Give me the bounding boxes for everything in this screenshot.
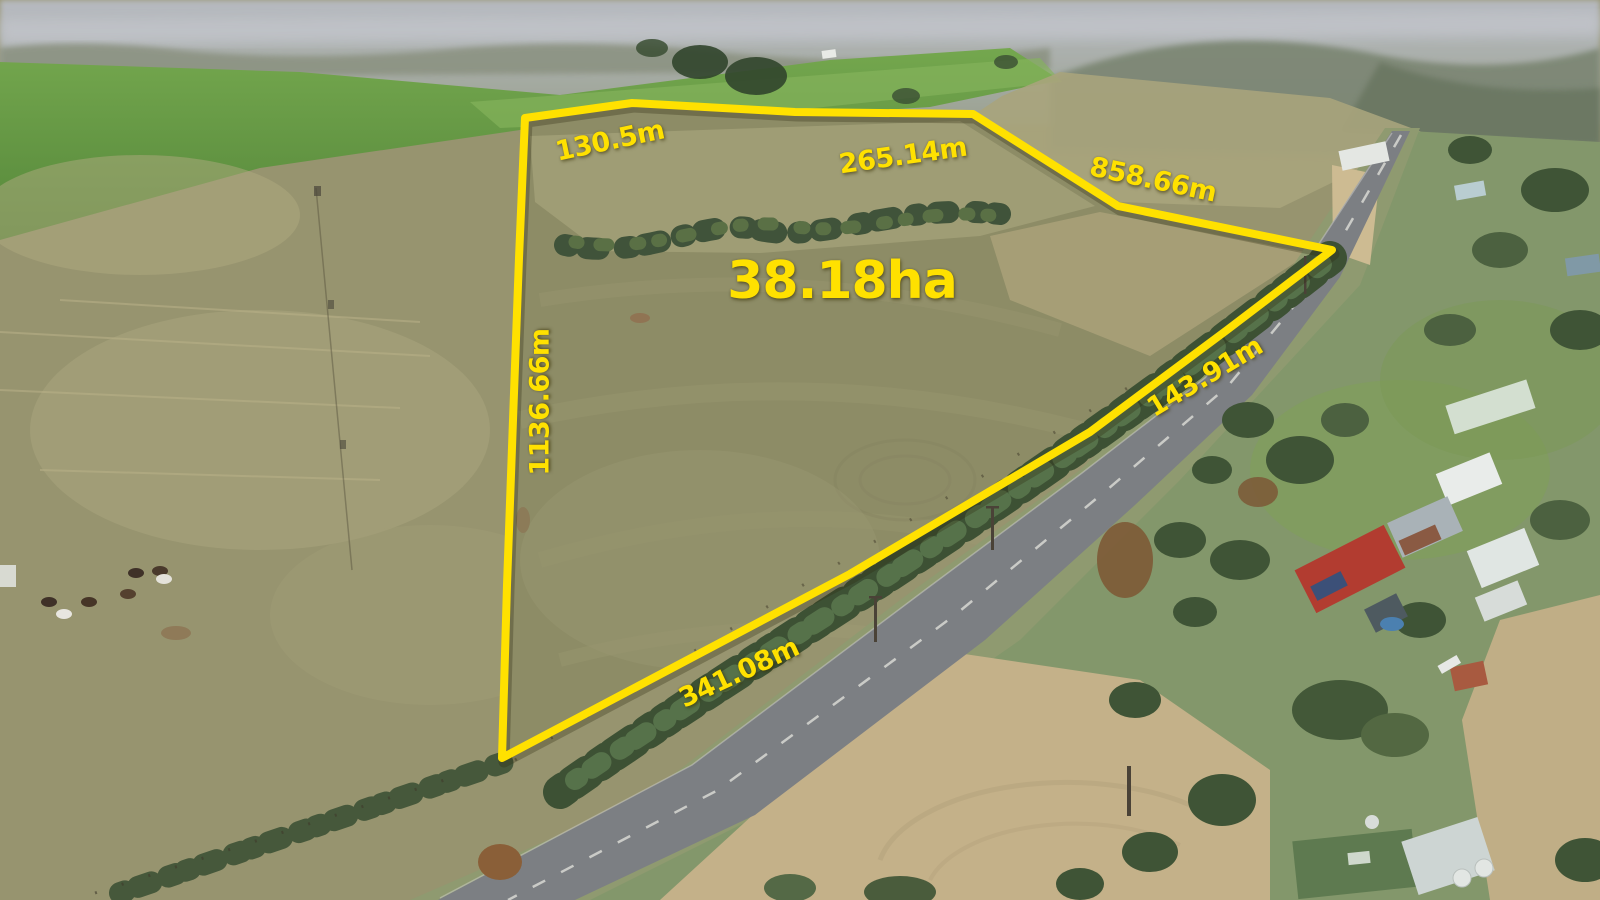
- tree: [1472, 232, 1528, 268]
- cow: [120, 589, 136, 599]
- red-dirt-spot: [516, 507, 530, 533]
- measurement-label-west: 1136.66m: [525, 328, 556, 475]
- crossarm: [986, 506, 999, 509]
- pylon: [314, 186, 321, 196]
- pylon: [340, 440, 346, 449]
- tree: [1173, 597, 1217, 627]
- crossarm: [869, 596, 882, 599]
- tree: [1188, 774, 1256, 826]
- white-cow: [56, 609, 72, 619]
- tree: [1222, 402, 1274, 438]
- tree: [1530, 500, 1590, 540]
- water-tank: [1475, 859, 1493, 877]
- cow: [41, 597, 57, 607]
- white-cow: [156, 574, 172, 584]
- tree-clump: [725, 57, 787, 95]
- tree: [1321, 403, 1369, 437]
- rusty-tree: [1097, 522, 1153, 598]
- rusty-tree: [478, 844, 522, 880]
- pylon: [328, 300, 334, 309]
- area-label: 38.18ha: [727, 251, 957, 311]
- tree: [1424, 314, 1476, 346]
- tree: [1448, 136, 1492, 164]
- tree: [1266, 436, 1334, 484]
- roof-panel: [1347, 851, 1370, 865]
- tree: [1154, 522, 1206, 558]
- tree: [1210, 540, 1270, 580]
- rusty-tree: [1238, 477, 1278, 507]
- cow: [128, 568, 144, 578]
- dirt-patch: [161, 626, 191, 640]
- tree-clump: [892, 88, 920, 104]
- power-pole: [874, 596, 877, 642]
- tree-clump: [994, 55, 1018, 69]
- water-tank: [1453, 869, 1471, 887]
- power-pole: [991, 506, 994, 550]
- shed-left-edge: [0, 565, 16, 587]
- tree: [1056, 868, 1104, 900]
- grass-tone-patch: [520, 450, 880, 670]
- power-pole: [1127, 766, 1131, 816]
- tree: [1122, 832, 1178, 872]
- pool: [1380, 617, 1404, 631]
- tree: [1521, 168, 1589, 212]
- tree-clump: [672, 45, 728, 79]
- water-tank: [1365, 815, 1379, 829]
- tree-clump: [636, 39, 668, 57]
- scene-svg: [0, 0, 1600, 900]
- tree: [1192, 456, 1232, 484]
- aerial-property-photo: 130.5m 265.14m 858.66m 1136.66m 143.91m …: [0, 0, 1600, 900]
- red-dirt-spot: [630, 313, 650, 323]
- tree: [1109, 682, 1161, 718]
- tree-cluster: [1361, 713, 1429, 757]
- cow: [81, 597, 97, 607]
